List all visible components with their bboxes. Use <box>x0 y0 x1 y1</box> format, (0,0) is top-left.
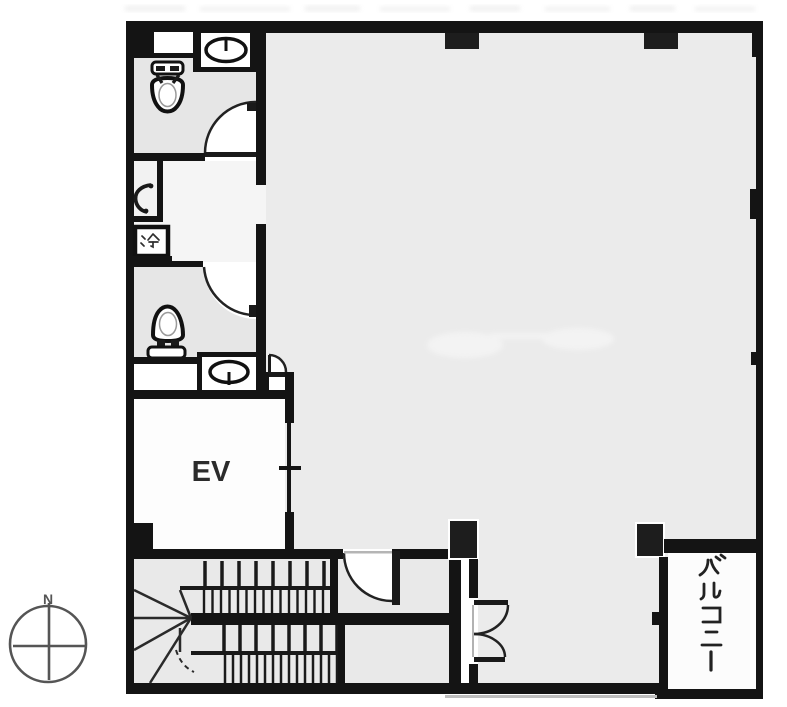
svg-text:EV: EV <box>192 456 231 488</box>
svg-text:N: N <box>43 591 53 607</box>
